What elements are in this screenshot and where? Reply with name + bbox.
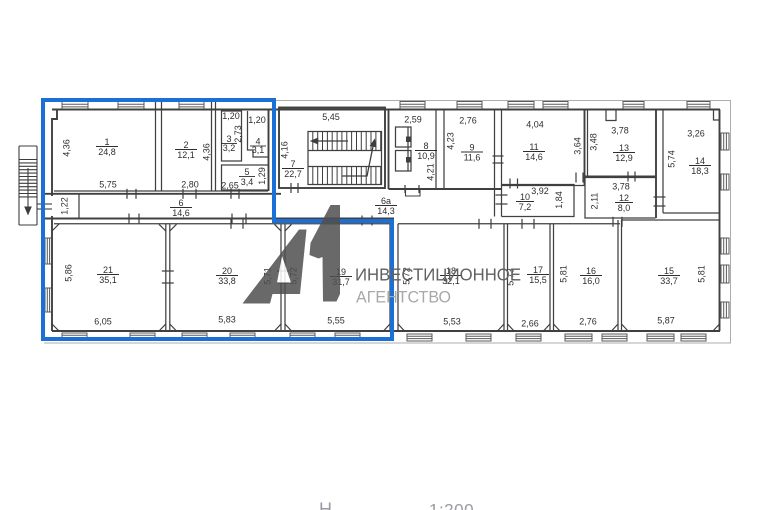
svg-text:5,45: 5,45 xyxy=(322,112,340,122)
svg-text:1: 1 xyxy=(104,137,109,147)
svg-text:2,66: 2,66 xyxy=(521,319,539,329)
svg-text:5,83: 5,83 xyxy=(218,315,236,325)
svg-text:2,65: 2,65 xyxy=(221,181,239,191)
svg-text:9: 9 xyxy=(469,143,474,153)
svg-text:5,55: 5,55 xyxy=(327,316,345,326)
svg-text:5: 5 xyxy=(244,167,249,177)
svg-text:3,78: 3,78 xyxy=(612,182,630,192)
svg-text:4,36: 4,36 xyxy=(202,143,212,161)
svg-text:1,20: 1,20 xyxy=(248,115,266,125)
svg-text:4,36: 4,36 xyxy=(62,139,72,157)
svg-text:7,2: 7,2 xyxy=(519,202,532,212)
svg-text:3,1: 3,1 xyxy=(252,145,265,155)
svg-text:14,6: 14,6 xyxy=(172,208,190,218)
svg-text:3,4: 3,4 xyxy=(241,177,254,187)
svg-text:1:200: 1:200 xyxy=(429,501,474,510)
svg-text:Н: Н xyxy=(319,500,332,510)
svg-text:11: 11 xyxy=(529,142,538,152)
svg-text:7: 7 xyxy=(290,159,295,169)
svg-text:20: 20 xyxy=(222,266,232,276)
svg-text:3,2: 3,2 xyxy=(223,143,236,153)
svg-text:АГЕНТСТВО: АГЕНТСТВО xyxy=(356,288,451,307)
svg-text:10,9: 10,9 xyxy=(417,151,435,161)
svg-text:6: 6 xyxy=(178,198,183,208)
svg-text:5,81: 5,81 xyxy=(697,265,707,283)
svg-text:35,1: 35,1 xyxy=(99,275,117,285)
svg-text:2,11: 2,11 xyxy=(590,193,600,210)
svg-text:1,20: 1,20 xyxy=(222,111,240,121)
svg-text:6,05: 6,05 xyxy=(94,317,112,327)
svg-text:5,75: 5,75 xyxy=(99,180,117,190)
svg-text:2: 2 xyxy=(183,140,188,150)
svg-text:5,74: 5,74 xyxy=(667,150,677,168)
svg-text:2,76: 2,76 xyxy=(459,116,477,126)
svg-text:8: 8 xyxy=(423,141,428,151)
svg-text:4,04: 4,04 xyxy=(526,120,544,130)
svg-text:4,16: 4,16 xyxy=(280,141,290,159)
svg-text:10: 10 xyxy=(520,192,530,202)
svg-text:4,23: 4,23 xyxy=(446,132,456,150)
svg-text:2,59: 2,59 xyxy=(404,115,422,125)
svg-text:21: 21 xyxy=(103,265,113,275)
svg-text:2,73: 2,73 xyxy=(233,125,243,143)
svg-text:2,80: 2,80 xyxy=(181,180,199,190)
svg-text:3,48: 3,48 xyxy=(589,133,599,151)
svg-text:12: 12 xyxy=(619,193,629,203)
svg-text:3,64: 3,64 xyxy=(573,137,583,155)
svg-text:14,6: 14,6 xyxy=(525,152,543,162)
svg-text:15,5: 15,5 xyxy=(529,275,547,285)
svg-text:22,7: 22,7 xyxy=(284,169,302,179)
svg-text:15: 15 xyxy=(664,266,674,276)
svg-text:3,78: 3,78 xyxy=(611,126,629,136)
svg-text:18,3: 18,3 xyxy=(691,166,709,176)
svg-text:5,53: 5,53 xyxy=(443,317,461,327)
svg-text:5,87: 5,87 xyxy=(657,316,675,326)
svg-text:1,22: 1,22 xyxy=(60,197,70,215)
svg-text:33,8: 33,8 xyxy=(218,276,236,286)
svg-text:ИНВЕСТИЦИОННОЕ: ИНВЕСТИЦИОННОЕ xyxy=(355,265,521,285)
svg-text:5,81: 5,81 xyxy=(559,265,569,283)
svg-text:8,0: 8,0 xyxy=(618,203,631,213)
svg-text:16,0: 16,0 xyxy=(582,276,600,286)
svg-text:13: 13 xyxy=(619,143,629,153)
svg-text:33,7: 33,7 xyxy=(660,276,678,286)
svg-text:3,26: 3,26 xyxy=(687,129,705,139)
svg-text:3,92: 3,92 xyxy=(531,186,549,196)
svg-text:1,29: 1,29 xyxy=(257,167,267,185)
svg-text:12,1: 12,1 xyxy=(177,150,195,160)
svg-text:1,84: 1,84 xyxy=(554,191,564,209)
svg-text:6а: 6а xyxy=(381,196,391,206)
svg-text:12,9: 12,9 xyxy=(615,153,633,163)
svg-text:24,8: 24,8 xyxy=(98,147,116,157)
svg-text:14,3: 14,3 xyxy=(377,206,395,216)
svg-text:17: 17 xyxy=(533,265,543,275)
svg-text:5,86: 5,86 xyxy=(64,264,74,282)
svg-text:11,6: 11,6 xyxy=(464,153,481,163)
svg-text:14: 14 xyxy=(695,156,705,166)
svg-text:4,21: 4,21 xyxy=(426,163,436,181)
svg-text:16: 16 xyxy=(586,266,596,276)
svg-text:2,76: 2,76 xyxy=(579,317,597,327)
